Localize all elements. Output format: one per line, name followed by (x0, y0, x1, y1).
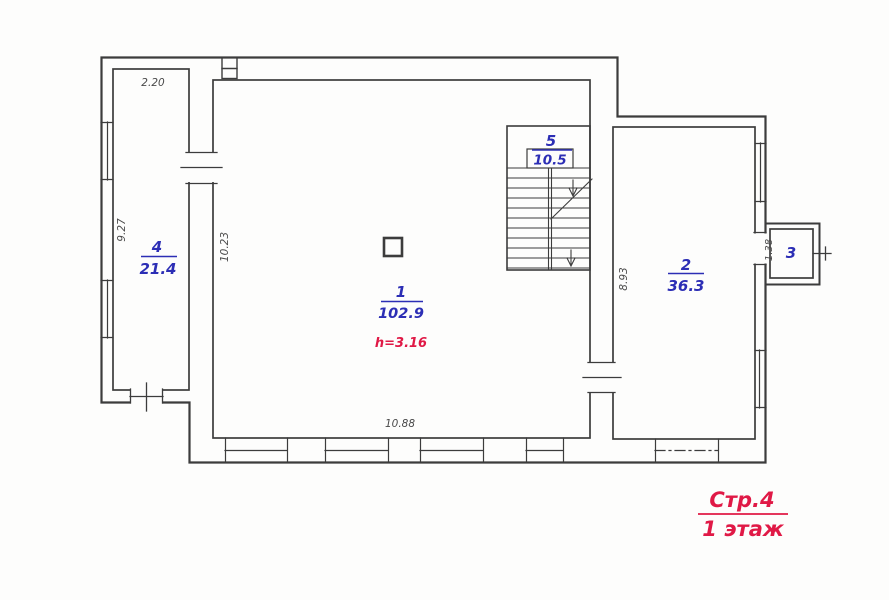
room-2-area: 36.3 (667, 277, 704, 295)
room-4-number: 4 (151, 238, 162, 256)
title-block: Стр.4 1 этаж (698, 488, 788, 541)
dim-room2-left-height: 8.93 (618, 267, 630, 290)
room-2-number: 2 (681, 256, 691, 274)
dim-balcony-depth: 1.38 (764, 239, 775, 261)
title-floor: 1 этаж (702, 517, 785, 541)
dim-room4-top-width: 2.20 (141, 77, 165, 89)
dim-room1-bottom-width: 10.88 (385, 418, 415, 430)
dim-room4-left-height: 9.27 (116, 218, 128, 242)
room-3-number: 3 (786, 244, 796, 262)
room-1-number: 1 (396, 283, 406, 301)
room-1-height-note: h=3.16 (375, 336, 427, 351)
title-page: Стр.4 (709, 488, 774, 512)
room-1-area: 102.9 (378, 306, 424, 322)
room-5-number: 5 (546, 132, 556, 150)
floor-plan: 1 102.9 2 36.3 3 4 21.4 5 10.5 h=3.16 2.… (0, 0, 889, 600)
room-4-area: 21.4 (139, 260, 176, 278)
room-5-area: 10.5 (533, 153, 566, 169)
dim-room1-left-height: 10.23 (219, 232, 231, 262)
